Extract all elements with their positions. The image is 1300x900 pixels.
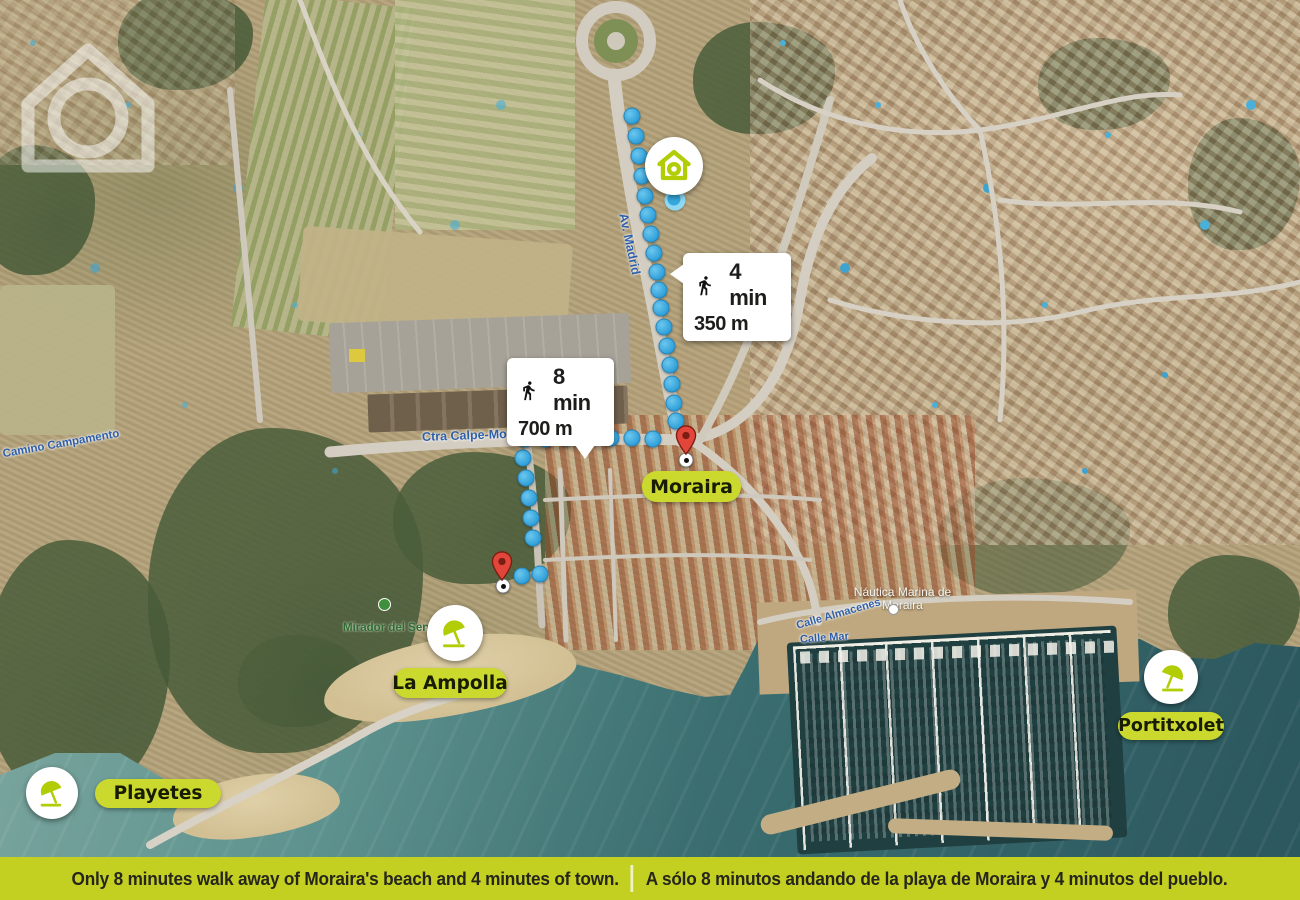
- map-label-nautica-marina: Náutica Marina de Moraira: [845, 586, 960, 612]
- satellite-map: Av. Madrid Ctra Calpe-Moraira Camino Cam…: [0, 0, 1300, 857]
- route-dot: [643, 226, 660, 243]
- screenshot-root: Av. Madrid Ctra Calpe-Moraira Camino Cam…: [0, 0, 1300, 900]
- la-ampolla-marker: [427, 605, 483, 661]
- callout-pointer: [575, 445, 595, 459]
- route-dot: [628, 128, 645, 145]
- route-dot: [662, 357, 679, 374]
- pill-moraira: Moraira: [642, 471, 741, 502]
- route-dot: [664, 376, 681, 393]
- banner-text-spanish: A sólo 8 minutos andando de la playa de …: [646, 868, 1228, 890]
- beach-umbrella-icon: [437, 615, 473, 651]
- bare-field: [0, 285, 115, 435]
- route-dot: [649, 264, 666, 281]
- beach-destination-pin: [491, 551, 513, 582]
- bottom-banner: Only 8 minutes walk away of Moraira's be…: [0, 857, 1300, 900]
- property-marker: [645, 137, 703, 195]
- poi-dot-mirador: [378, 598, 391, 611]
- walk-distance: 350 m: [694, 313, 780, 336]
- playetes-marker: [26, 767, 78, 819]
- route-dot: [659, 338, 676, 355]
- crop-field: [395, 0, 575, 230]
- beach-umbrella-icon: [35, 776, 69, 810]
- portitxolet-marker: [1144, 650, 1198, 704]
- route-dot: [646, 245, 663, 262]
- pill-playetes: Playetes: [95, 779, 221, 808]
- walk-time: 8 min: [553, 364, 603, 416]
- walking-person-icon: [694, 274, 715, 297]
- banner-text-english: Only 8 minutes walk away of Moraira's be…: [72, 868, 619, 890]
- callout-walk-beach: 8 min 700 m: [507, 358, 614, 446]
- walk-time: 4 min: [729, 259, 780, 311]
- route-dot: [624, 108, 641, 125]
- route-dot: [651, 282, 668, 299]
- roundabout: [582, 7, 650, 75]
- street-label-av-madrid: Av. Madrid: [616, 212, 643, 276]
- banner-separator: [631, 865, 634, 892]
- town-destination-pin: [675, 425, 697, 456]
- brand-house-logo-watermark: [8, 42, 168, 177]
- route-dot: [637, 188, 654, 205]
- walk-distance: 700 m: [518, 418, 603, 441]
- house-icon: [655, 147, 693, 185]
- route-dot: [640, 207, 657, 224]
- walking-person-icon: [518, 379, 539, 402]
- callout-walk-town: 4 min 350 m: [683, 253, 791, 341]
- pill-la-ampolla: La Ampolla: [393, 668, 507, 698]
- callout-pointer: [670, 264, 684, 284]
- route-dot: [666, 395, 683, 412]
- route-dot: [656, 319, 673, 336]
- yellow-building: [349, 349, 365, 362]
- poi-dot-marina: [888, 604, 899, 615]
- route-dot: [653, 300, 670, 317]
- pill-portitxolet: Portitxolet: [1118, 712, 1224, 740]
- beach-umbrella-icon: [1154, 660, 1189, 695]
